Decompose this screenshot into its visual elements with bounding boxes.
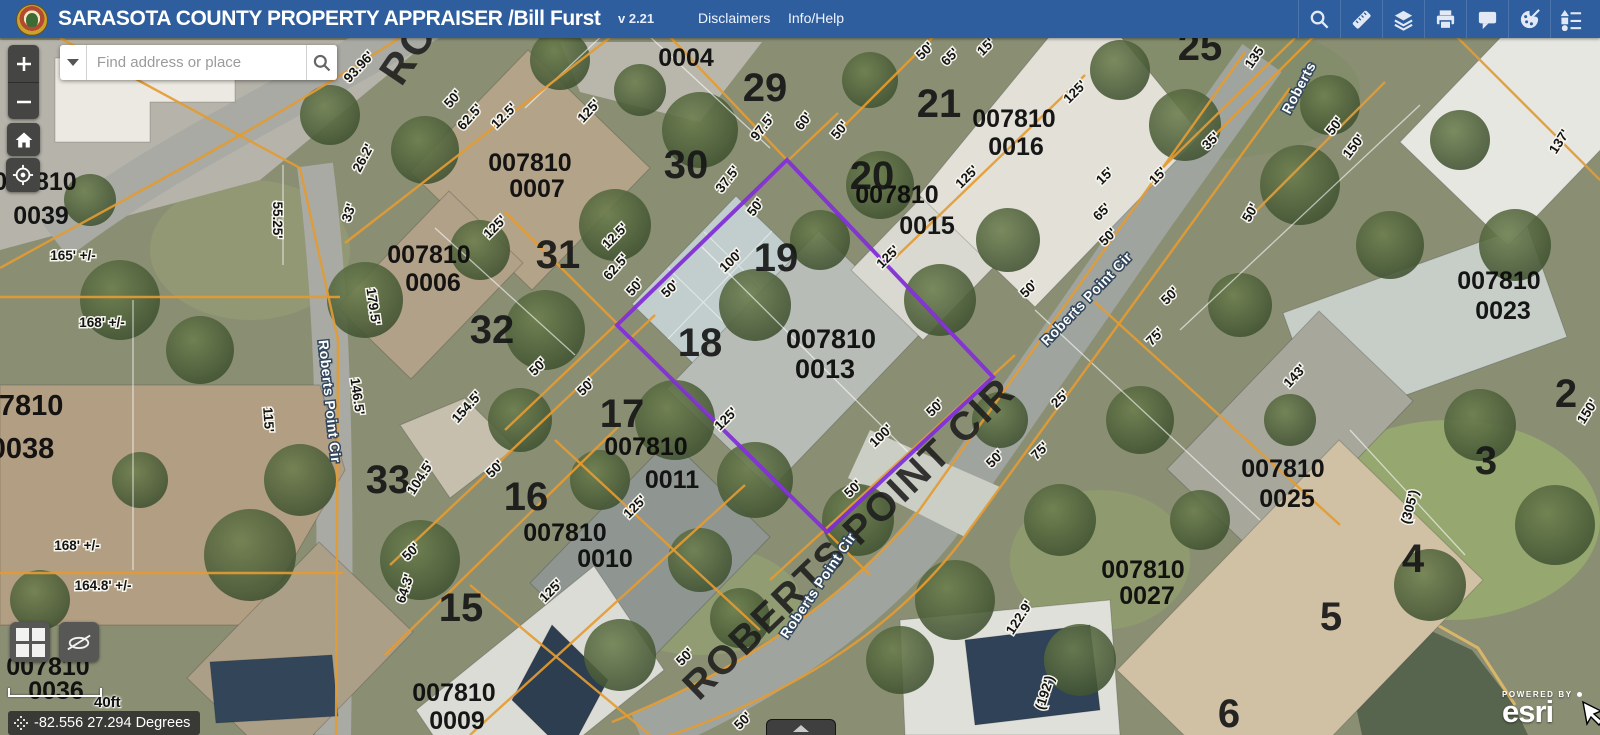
locate-icon: [12, 164, 34, 186]
feedback-icon[interactable]: [1466, 0, 1508, 38]
lot-number: 30: [664, 143, 709, 187]
plus-icon: [15, 55, 33, 73]
app-window: ROBERTS POINT CIR RO Roberts Point Cir R…: [0, 0, 1600, 735]
home-icon: [14, 130, 34, 150]
lot-number: 15: [439, 586, 484, 630]
parcel-label: 0027: [1119, 582, 1175, 610]
parcel-label: 0023: [1475, 297, 1531, 325]
magnifier-icon: [312, 53, 332, 73]
app-title: SARASOTA COUNTY PROPERTY APPRAISER /Bill…: [58, 7, 600, 31]
search-widget: [60, 45, 337, 80]
parcel-label: 0009: [429, 707, 485, 735]
selected-parcel-label: 007810: [786, 324, 876, 354]
parcel-label: 0025: [1259, 485, 1315, 513]
parcel-label: 0038: [0, 433, 54, 465]
disclaimers-link[interactable]: Disclaimers: [698, 10, 770, 26]
parcel-label: 007810: [1457, 267, 1540, 295]
parcel-label: 007810: [972, 105, 1055, 133]
lot-number: 29: [743, 66, 788, 110]
parcel-label: 0015: [899, 212, 955, 240]
lot-number: 32: [470, 308, 515, 352]
parcel-label: 0039: [13, 202, 69, 230]
chevron-down-icon: [67, 59, 79, 66]
dimension-label: 164.8' +/-: [75, 578, 132, 593]
search-sources-dropdown[interactable]: [60, 45, 87, 80]
crosshair-dots-icon: [14, 716, 28, 730]
esri-logo: esri: [1502, 699, 1582, 725]
dimension-label: 168' +/-: [54, 538, 100, 553]
minus-icon: [15, 93, 33, 111]
lot-number: 31: [536, 233, 581, 277]
parcel-label: 0011: [645, 466, 699, 494]
county-seal-logo: [16, 4, 48, 36]
parcel-label: 0006: [405, 269, 461, 297]
search-icon[interactable]: [1298, 0, 1340, 38]
basemap-grid-icon: [16, 628, 29, 641]
lot-number: 16: [504, 475, 549, 519]
sketch-tool-button[interactable]: [59, 622, 99, 662]
legend-icon[interactable]: [1550, 0, 1592, 38]
lot-number: 17: [600, 392, 645, 436]
lot-number: 19: [754, 236, 799, 280]
chevron-up-icon: [793, 725, 809, 732]
parcel-label: 0007: [509, 175, 565, 203]
coordinates-value: -82.556 27.294 Degrees: [34, 715, 190, 731]
search-input[interactable]: [87, 45, 306, 80]
lot-number: 6: [1218, 692, 1240, 735]
lot-number: 33: [366, 458, 411, 502]
lot-number: 18: [678, 321, 723, 365]
app-header: SARASOTA COUNTY PROPERTY APPRAISER /Bill…: [0, 0, 1600, 38]
dimension-label: 55.25': [270, 202, 285, 239]
parcel-label: 007810: [412, 679, 495, 707]
lot-number: 5: [1320, 595, 1342, 639]
print-icon[interactable]: [1424, 0, 1466, 38]
dimension-label: 165' +/-: [50, 248, 96, 263]
dimension-label: 115': [260, 407, 277, 433]
mouse-cursor: [1578, 700, 1600, 730]
parcel-label: 007810: [1101, 556, 1184, 584]
zoom-control: [8, 45, 39, 119]
drawing-tools-icon[interactable]: [1508, 0, 1550, 38]
parcel-label: 0010: [577, 545, 633, 573]
my-location-button[interactable]: [6, 158, 40, 192]
map-canvas[interactable]: ROBERTS POINT CIR RO Roberts Point Cir R…: [0, 38, 1600, 735]
basemap-gallery-button[interactable]: [10, 622, 50, 662]
lot-number: 2: [1555, 372, 1577, 416]
lot-number: 4: [1402, 537, 1425, 581]
parcel-label: 007810: [387, 241, 470, 269]
parcel-label: 007810: [523, 519, 606, 547]
zoom-in-button[interactable]: [8, 45, 39, 82]
selected-parcel-label: 0013: [795, 354, 855, 384]
zoom-out-button[interactable]: [8, 82, 39, 119]
layers-icon[interactable]: [1382, 0, 1424, 38]
parcel-label: 0004: [658, 44, 714, 72]
esri-attribution: POWERED BY esri: [1502, 690, 1582, 725]
home-extent-button[interactable]: [7, 123, 40, 156]
dimension-label: 168' +/-: [79, 315, 125, 330]
parcel-label: 007810: [604, 433, 687, 461]
scale-label: 40ft: [94, 694, 121, 711]
measure-icon[interactable]: [1340, 0, 1382, 38]
parcel-label: 007810: [488, 149, 571, 177]
parcel-label: 007810: [0, 390, 63, 422]
lot-number: 20: [850, 154, 895, 198]
lot-number: 25: [1178, 38, 1223, 69]
parcel-label: 007810: [1241, 455, 1324, 483]
lot-number: 3: [1475, 439, 1497, 483]
lot-number: 21: [917, 82, 962, 126]
search-submit-button[interactable]: [306, 45, 337, 80]
attribute-table-toggle[interactable]: [766, 719, 836, 735]
coordinate-readout: -82.556 27.294 Degrees: [8, 711, 200, 735]
sketch-icon: [66, 631, 92, 653]
header-toolbar: [1298, 0, 1592, 38]
parcel-label: 0016: [988, 133, 1044, 161]
info-help-link[interactable]: Info/Help: [788, 10, 844, 26]
scale-bar: [8, 688, 102, 697]
version-label: v 2.21: [618, 11, 654, 26]
